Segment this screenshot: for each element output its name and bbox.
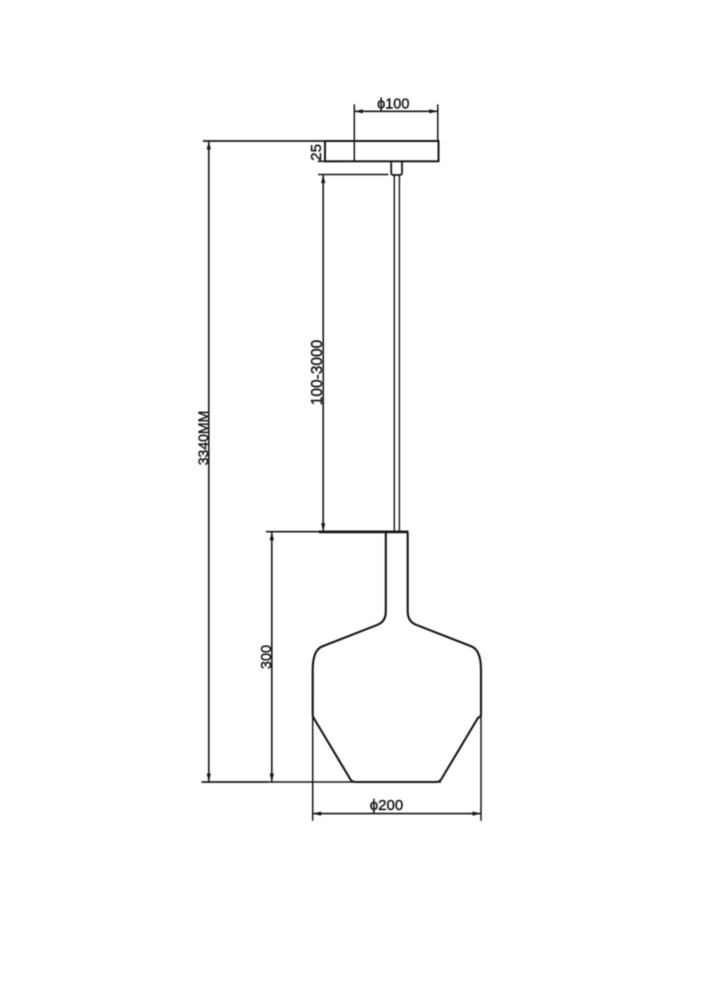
svg-text:ϕ200: ϕ200	[370, 797, 403, 814]
svg-text:25: 25	[308, 144, 325, 161]
svg-text:3340MM: 3340MM	[195, 411, 211, 465]
svg-text:300: 300	[259, 645, 275, 669]
svg-text:100-3000: 100-3000	[309, 339, 326, 405]
svg-text:ϕ100: ϕ100	[377, 97, 409, 113]
